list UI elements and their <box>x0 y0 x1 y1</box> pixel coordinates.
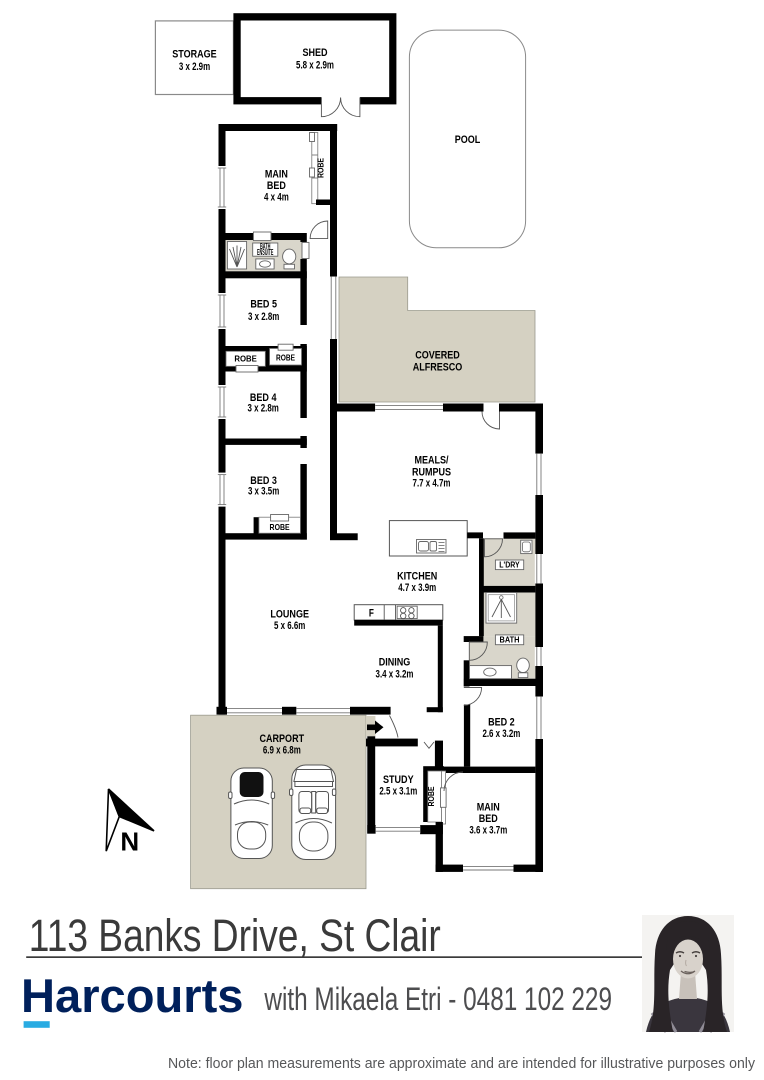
svg-text:BED: BED <box>267 180 286 192</box>
svg-text:2.6 x 3.2m: 2.6 x 3.2m <box>482 728 520 740</box>
svg-text:BATH: BATH <box>500 635 520 645</box>
svg-text:ROBE: ROBE <box>426 786 436 806</box>
svg-text:COVERED: COVERED <box>415 350 460 362</box>
svg-text:3.6 x 3.7m: 3.6 x 3.7m <box>469 825 507 837</box>
svg-text:MAIN: MAIN <box>265 168 288 180</box>
svg-text:with Mikaela Etri - 0481 102 2: with Mikaela Etri - 0481 102 229 <box>264 981 612 1017</box>
svg-text:ENSUITE: ENSUITE <box>257 247 274 257</box>
svg-text:MAIN: MAIN <box>477 802 500 814</box>
svg-text:ALFRESCO: ALFRESCO <box>413 362 463 374</box>
svg-text:STORAGE: STORAGE <box>172 49 216 61</box>
svg-text:4.7 x 3.9m: 4.7 x 3.9m <box>398 582 436 594</box>
svg-text:STUDY: STUDY <box>383 774 414 786</box>
svg-text:5.8 x 2.9m: 5.8 x 2.9m <box>296 60 334 72</box>
svg-text:3 x 3.5m: 3 x 3.5m <box>248 486 279 498</box>
svg-text:ROBE: ROBE <box>234 354 257 364</box>
svg-text:BED: BED <box>479 813 498 825</box>
svg-text:BED 2: BED 2 <box>488 716 515 728</box>
svg-text:4 x 4m: 4 x 4m <box>264 191 289 203</box>
svg-text:Note: floor plan measurements: Note: floor plan measurements are approx… <box>168 1055 755 1072</box>
svg-text:7.7 x 4.7m: 7.7 x 4.7m <box>413 477 451 489</box>
svg-text:ROBE: ROBE <box>276 353 295 363</box>
svg-text:3 x 2.8m: 3 x 2.8m <box>248 403 279 415</box>
svg-text:KITCHEN: KITCHEN <box>397 570 437 582</box>
svg-text:SHED: SHED <box>302 47 327 59</box>
svg-text:5 x 6.6m: 5 x 6.6m <box>274 620 305 632</box>
svg-text:MEALS/: MEALS/ <box>414 455 448 467</box>
svg-text:ROBE: ROBE <box>316 158 326 178</box>
svg-text:Harcourts: Harcourts <box>21 969 244 1022</box>
svg-text:ROBE: ROBE <box>270 522 290 532</box>
svg-text:BED 5: BED 5 <box>250 299 277 311</box>
svg-text:3.4 x 3.2m: 3.4 x 3.2m <box>376 669 414 681</box>
svg-text:6.9 x 6.8m: 6.9 x 6.8m <box>263 744 301 756</box>
svg-text:2.5 x 3.1m: 2.5 x 3.1m <box>379 785 417 797</box>
svg-text:F: F <box>369 608 374 620</box>
svg-text:POOL: POOL <box>455 134 481 146</box>
svg-text:3 x 2.8m: 3 x 2.8m <box>248 311 279 323</box>
svg-text:LOUNGE: LOUNGE <box>270 609 309 621</box>
svg-text:DINING: DINING <box>379 657 411 669</box>
svg-text:3 x 2.9m: 3 x 2.9m <box>179 61 210 73</box>
svg-text:113 Banks Drive, St Clair: 113 Banks Drive, St Clair <box>29 910 441 961</box>
svg-text:N: N <box>120 827 139 857</box>
svg-text:L'DRY: L'DRY <box>499 559 520 569</box>
svg-text:CARPORT: CARPORT <box>260 733 305 745</box>
